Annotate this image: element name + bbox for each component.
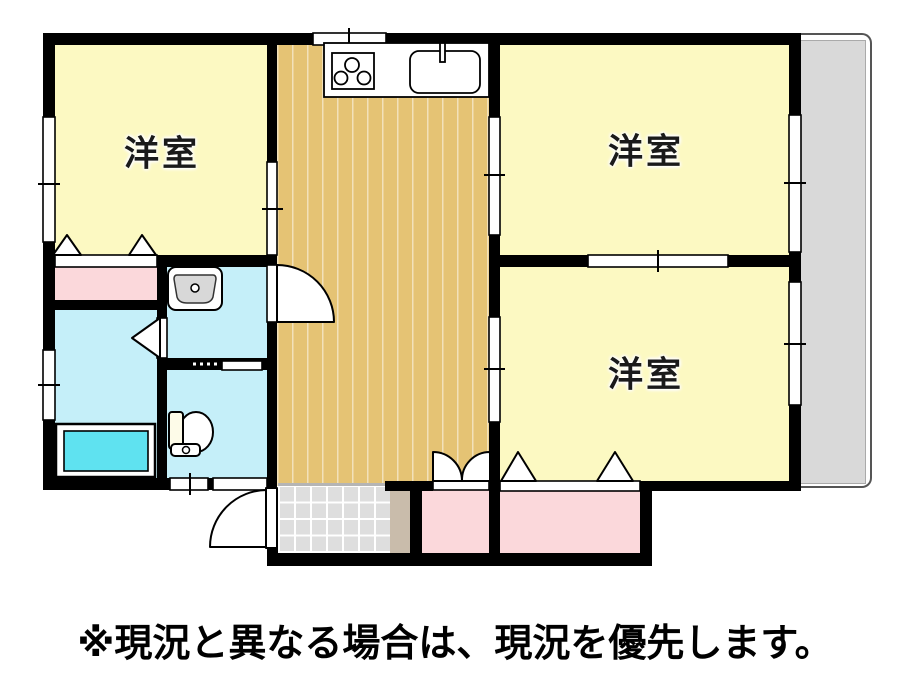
- room-label: 洋室: [608, 124, 684, 175]
- faucet-icon: [440, 43, 445, 62]
- closet-opening: [433, 481, 489, 490]
- closet-opening: [55, 255, 157, 267]
- windows-and-openings: [43, 33, 801, 491]
- doorway-opening: [267, 265, 277, 322]
- entrance-door-swing-icon: [210, 490, 267, 547]
- room-label: 洋室: [608, 347, 684, 398]
- window-icon: [43, 117, 55, 242]
- room-label: 洋室: [124, 126, 200, 177]
- disclaimer-notice: ※現況と異なる場合は、現況を優先します。: [0, 612, 910, 667]
- floor-plan-page: 洋室 洋室 洋室 ※現況と異なる場合は、現況を優先します。: [0, 0, 910, 686]
- doorway-opening: [213, 478, 267, 490]
- door-swing-icon: [210, 265, 490, 548]
- walls: [43, 33, 801, 566]
- double-door-swing-icon: [462, 452, 490, 481]
- bathtub-icon: [56, 424, 155, 477]
- double-door-swing-icon: [433, 452, 462, 481]
- kitchen-counter: [324, 43, 489, 97]
- entrance-door-leaf: [266, 488, 277, 548]
- washbasin-icon: [168, 267, 222, 310]
- closet-opening: [500, 481, 640, 491]
- toilet-icon: [169, 412, 213, 456]
